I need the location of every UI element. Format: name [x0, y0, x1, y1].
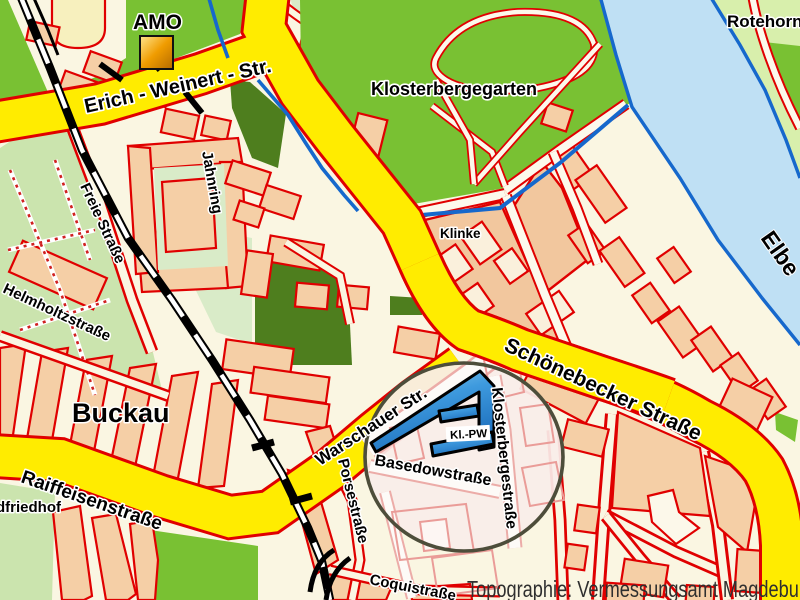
svg-text:Topographie: Vermessungsamt Ma: Topographie: Vermessungsamt Magdeburg — [467, 576, 800, 600]
svg-text:Klinke: Klinke — [440, 226, 481, 241]
svg-text:AMO: AMO — [133, 11, 182, 34]
svg-text:Buckau: Buckau — [72, 398, 170, 428]
svg-text:Klosterbergegarten: Klosterbergegarten — [371, 79, 537, 99]
svg-text:Rotehorn: Rotehorn — [727, 12, 800, 31]
svg-text:dfriedhof: dfriedhof — [0, 499, 62, 516]
svg-text:Kl.-PW: Kl.-PW — [450, 428, 488, 442]
